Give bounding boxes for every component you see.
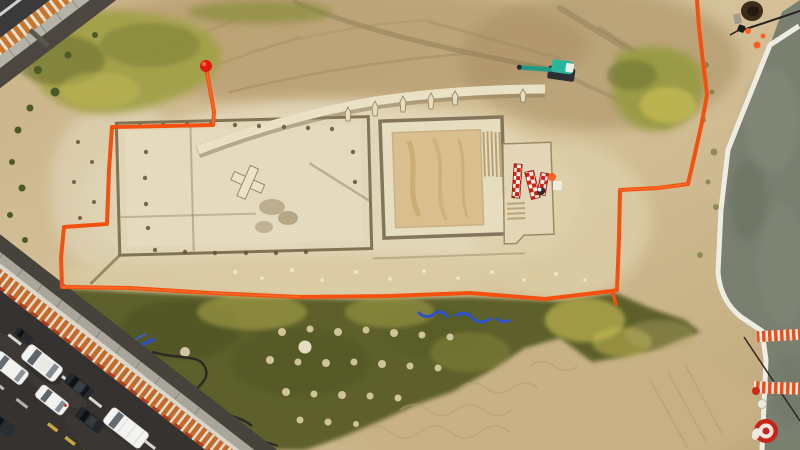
aerial-photo bbox=[0, 0, 800, 450]
marker-cone bbox=[548, 173, 556, 181]
orange-fence bbox=[757, 329, 800, 342]
white-board bbox=[553, 181, 562, 190]
red-flag bbox=[200, 60, 212, 72]
orange-fence bbox=[753, 381, 800, 395]
white-post bbox=[758, 400, 767, 409]
aerial-photo-canvas bbox=[0, 0, 800, 450]
